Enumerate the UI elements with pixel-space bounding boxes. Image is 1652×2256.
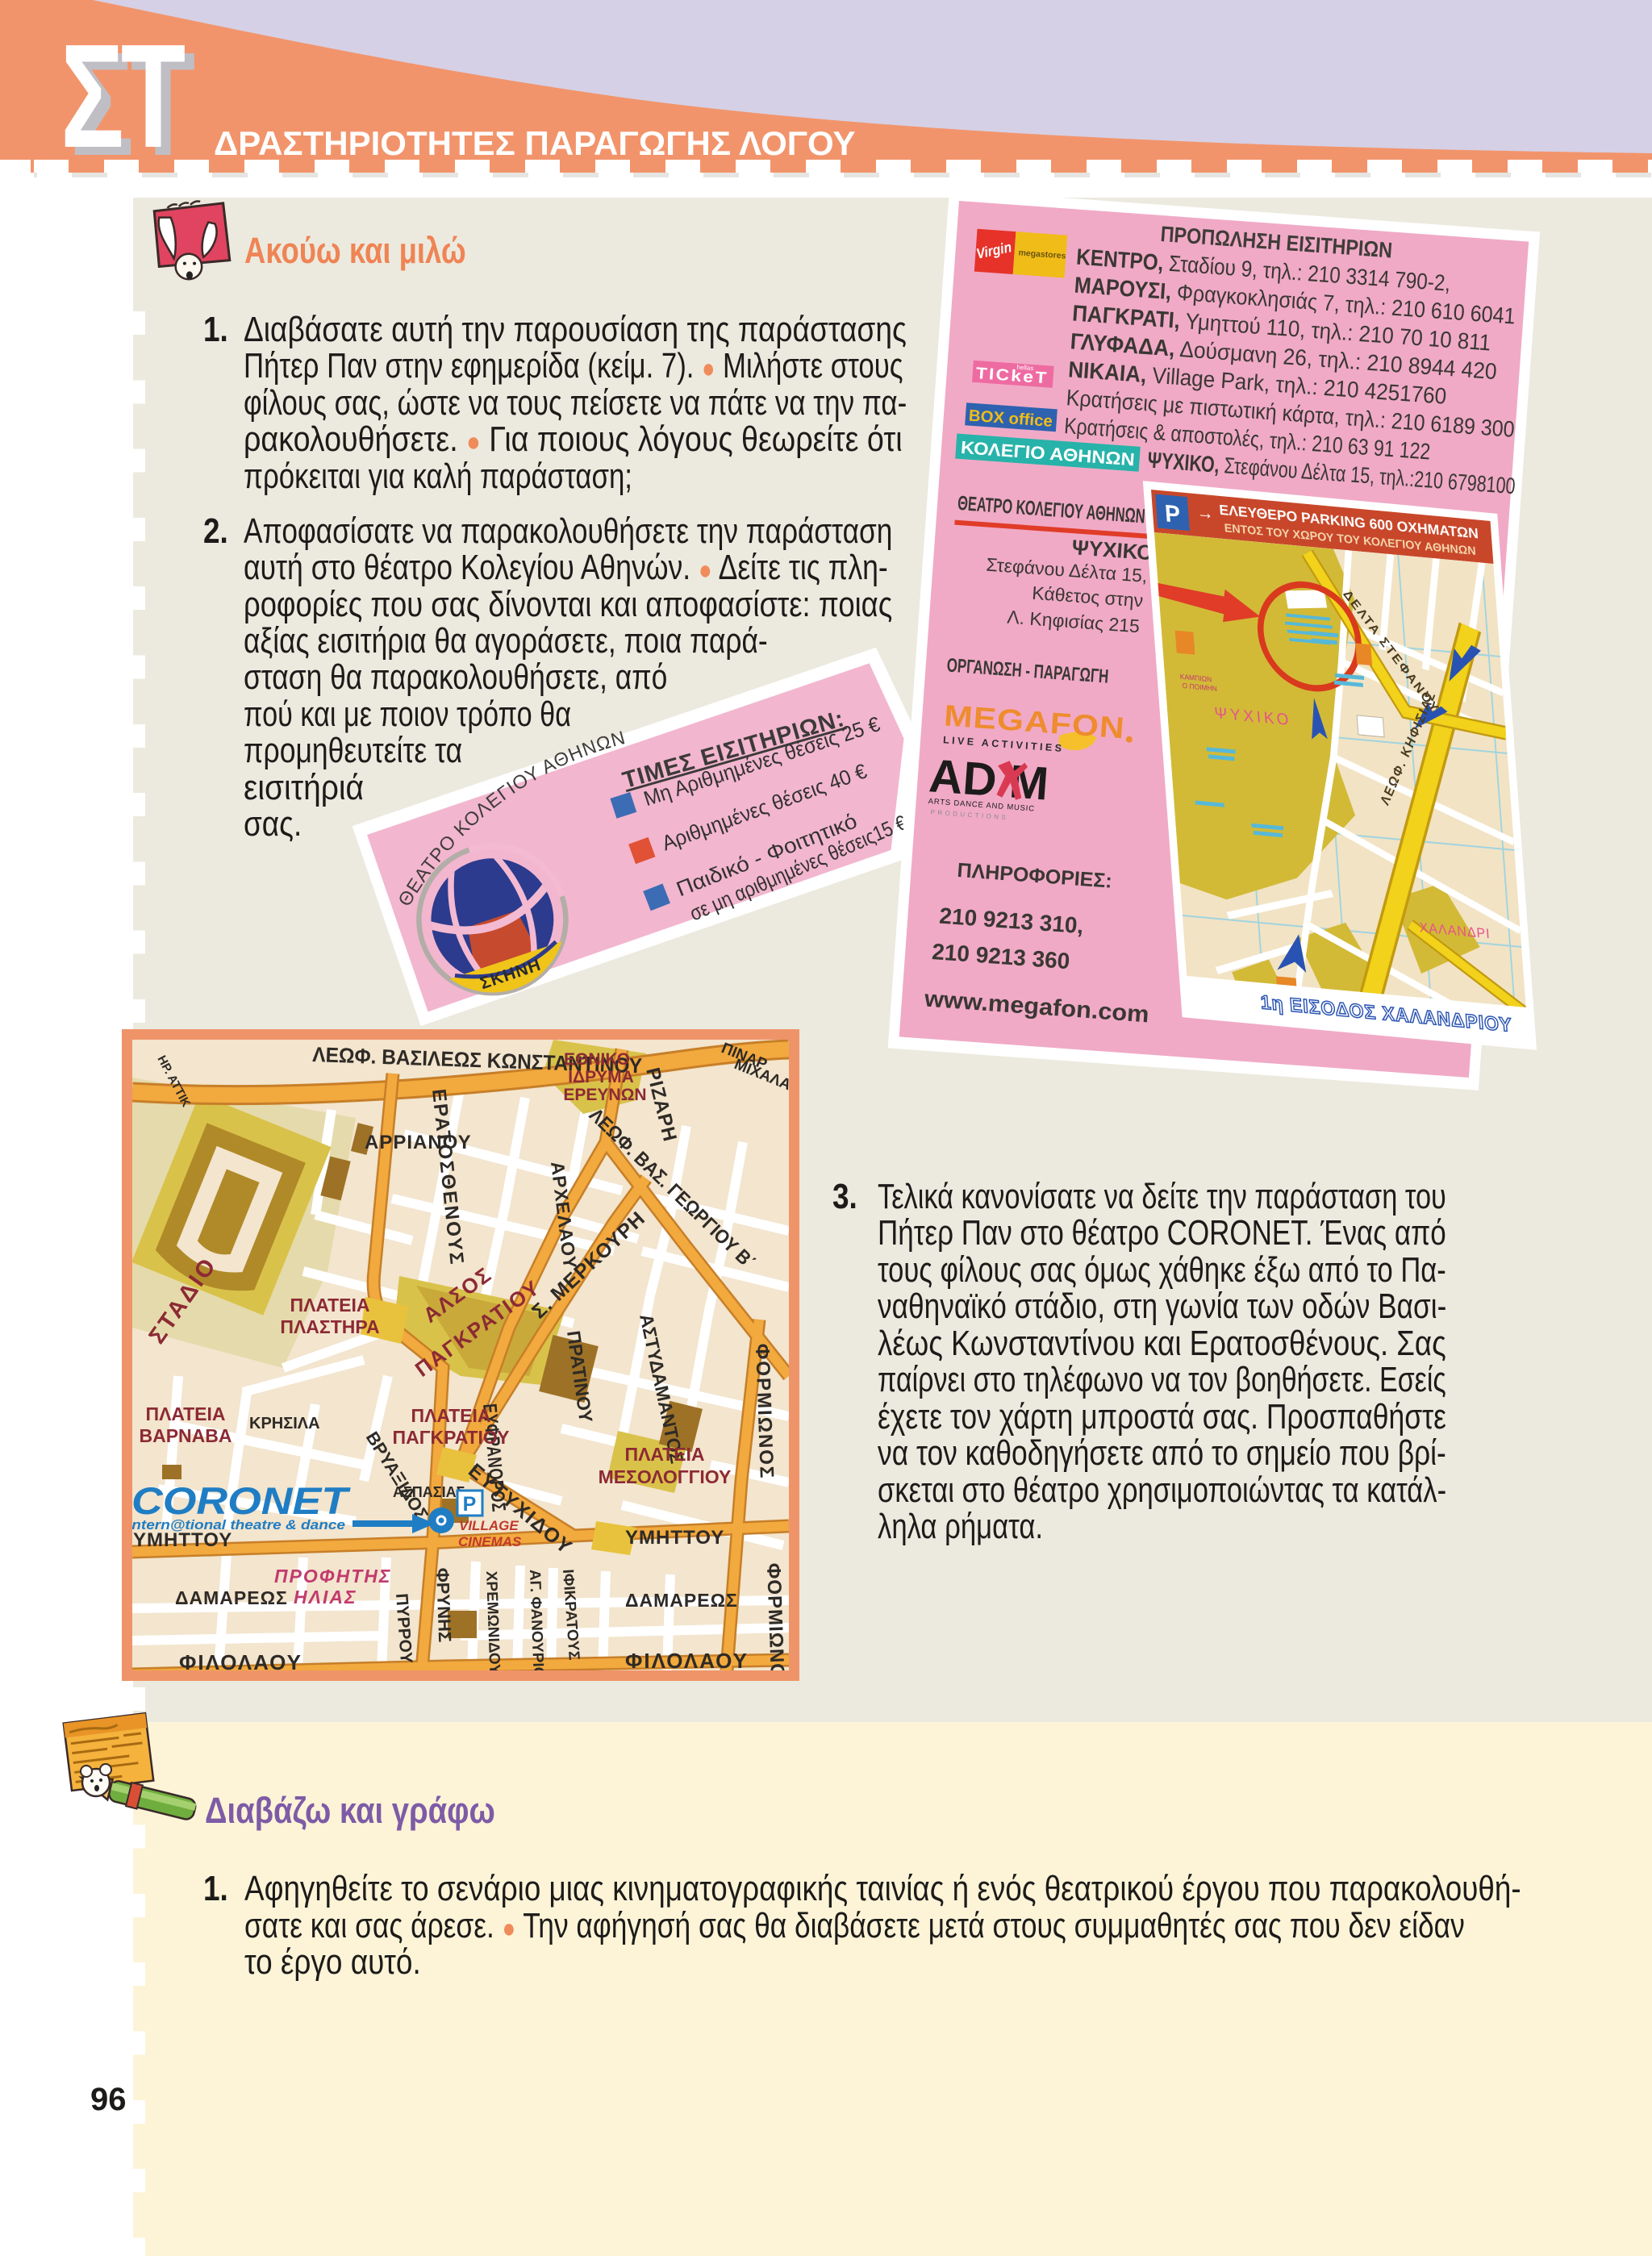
svg-text:ΠΛΑΤΕΙΑ: ΠΛΑΤΕΙΑ [145,1403,225,1424]
svg-text:ΚΡΗΣΙΛΑ: ΚΡΗΣΙΛΑ [249,1415,320,1432]
svg-text:ΦΟΡΜΙΩΝΟΣ: ΦΟΡΜΙΩΝΟΣ [762,1562,789,1681]
svg-text:ΥΜΗΤΤΟΥ: ΥΜΗΤΤΟΥ [133,1529,232,1551]
svg-text:VILLAGE: VILLAGE [459,1518,519,1533]
svg-text:ΧΡΕΜΩΝΙΔΟΥ: ΧΡΕΜΩΝΙΔΟΥ [482,1570,503,1674]
svg-text:P: P [463,1493,477,1516]
svg-text:ΗΛΙΑΣ: ΗΛΙΑΣ [294,1587,357,1608]
svg-text:ΠΡΟΦΗΤΗΣ: ΠΡΟΦΗΤΗΣ [274,1566,392,1587]
svg-text:P: P [1164,500,1181,529]
svg-text:ΑΡΡΙΑΝΟΥ: ΑΡΡΙΑΝΟΥ [365,1132,472,1153]
svg-text:ΜΕΣΟΛΟΓΓΙΟΥ: ΜΕΣΟΛΟΓΓΙΟΥ [599,1466,732,1487]
svg-text:ΔΑΜΑΡΕΩΣ: ΔΑΜΑΡΕΩΣ [175,1587,288,1608]
svg-text:ΒΑΡΝΑΒΑ: ΒΑΡΝΑΒΑ [140,1425,232,1446]
svg-text:intern@tional theatre & dance: intern@tional theatre & dance [127,1517,345,1532]
svg-text:ΥΜΗΤΤΟΥ: ΥΜΗΤΤΟΥ [625,1527,724,1549]
svg-text:CINEMAS: CINEMAS [458,1534,522,1549]
svg-text:ΠΛΑΣΤΗΡΑ: ΠΛΑΣΤΗΡΑ [280,1316,379,1337]
svg-text:→: → [1196,502,1215,524]
svg-text:hellas: hellas [1016,364,1033,372]
svg-text:ΠΛΑΤΕΙΑ: ΠΛΑΤΕΙΑ [624,1444,704,1465]
svg-text:ΠΑΓΚΡΑΤΙΟΥ: ΠΑΓΚΡΑΤΙΟΥ [392,1427,509,1448]
svg-text:ΕΘΝΙΚΟ: ΕΘΝΙΚΟ [564,1050,630,1069]
svg-text:CORONET: CORONET [131,1479,352,1522]
svg-text:ΕΡΕΥΝΩΝ: ΕΡΕΥΝΩΝ [563,1086,646,1104]
svg-text:ΦΙΛΟΛΑΟΥ: ΦΙΛΟΛΑΟΥ [625,1649,749,1673]
svg-text:ΦΡΥΝΗΣ: ΦΡΥΝΗΣ [432,1567,455,1642]
svg-text:ΑΣΠΑΣΙΑΣ: ΑΣΠΑΣΙΑΣ [393,1484,465,1500]
svg-text:ΙΔΡΥΜΑ: ΙΔΡΥΜΑ [568,1068,634,1086]
svg-text:ΠΛΑΤΕΙΑ: ΠΛΑΤΕΙΑ [411,1405,490,1426]
svg-text:ΔΑΜΑΡΕΩΣ: ΔΑΜΑΡΕΩΣ [625,1590,738,1611]
svg-text:ΠΛΑΤΕΙΑ: ΠΛΑΤΕΙΑ [290,1295,369,1316]
